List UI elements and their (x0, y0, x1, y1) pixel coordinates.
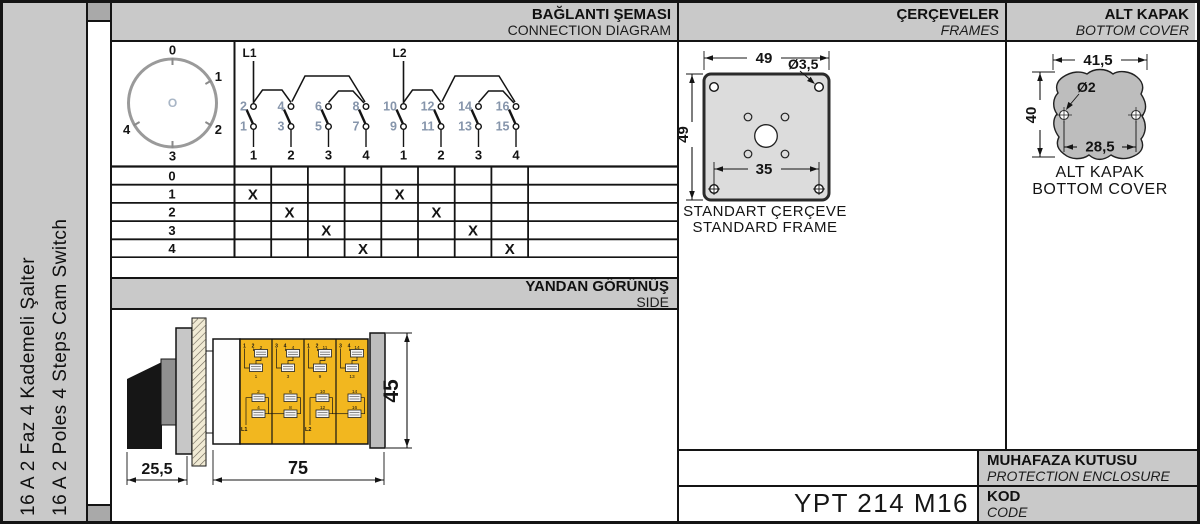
module-feed-label: L2 (305, 427, 311, 433)
dim-arrow (375, 477, 383, 483)
switch-contact: 14133 (458, 100, 482, 163)
dim-arrow (1037, 148, 1043, 156)
dim-arrow (1054, 57, 1062, 63)
frame-dim-spacing: 35 (756, 161, 773, 178)
terminal-number-bottom: 11 (421, 120, 434, 134)
datasheet-page: 16 A 2 Faz 4 Kademeli Şalter 16 A 2 Pole… (0, 0, 1200, 524)
switch-contact: 432 (278, 100, 295, 163)
side-view-tr: YANDAN GÖRÜNÜŞ (525, 278, 669, 295)
terminal-number-top: 6 (315, 100, 322, 114)
header-band: BAĞLANTI ŞEMASI CONNECTION DIAGRAM ÇERÇE… (112, 3, 1197, 42)
standard-frame-drawing: 49Ø3,54935STANDART ÇERÇEVESTANDARD FRAME (679, 50, 847, 236)
header-connection-tr: BAĞLANTI ŞEMASI (532, 6, 671, 23)
terminal-block-number: 12 (320, 405, 326, 411)
handle-knob (127, 360, 166, 449)
terminal-block-number: 4 (257, 405, 260, 411)
dial-position-label: 0 (169, 43, 176, 58)
table-mark: X (468, 223, 478, 240)
terminal-number-bottom: 7 (353, 120, 360, 134)
header-cell-bottom-cover: ALT KAPAK BOTTOM COVER (1005, 3, 1195, 40)
cover-dim-spacing: 28,5 (1085, 139, 1114, 156)
product-code: YPT 214 M16 (679, 487, 975, 519)
column-number: 4 (362, 148, 370, 163)
dim-arrow (128, 477, 136, 483)
standard-frame-svg: 49Ø3,54935STANDART ÇERÇEVESTANDARD FRAME (679, 42, 1005, 449)
terminal-number-bottom: 15 (496, 120, 510, 134)
column-number: 1 (250, 148, 257, 163)
code-label-en: CODE (987, 505, 1197, 520)
terminal-block-number: 4 (292, 345, 295, 351)
switch-contact: 12112 (421, 100, 445, 163)
enclosure-tr: MUHAFAZA KUTUSU (987, 452, 1197, 469)
switching-table: 01XX2XX3XX4XX (112, 167, 677, 258)
frame-label-tr: STANDART ÇERÇEVE (683, 203, 847, 220)
header-frames-en: FRAMES (941, 23, 999, 38)
table-row-label: 0 (168, 168, 175, 183)
frame-label-en: STANDARD FRAME (692, 219, 837, 236)
registration-mark-bottom (88, 504, 110, 521)
dial-position-label: 2 (215, 122, 222, 137)
terminal-number-top: 10 (383, 100, 397, 114)
dim-handle: 25,5 (141, 461, 172, 478)
header-frames-tr: ÇERÇEVELER (896, 6, 999, 23)
column-number: 3 (325, 148, 332, 163)
dial-position-label: 3 (169, 149, 176, 164)
side-view-band: YANDAN GÖRÜNÜŞ SIDE (112, 277, 677, 310)
terminal-number-top: 14 (458, 100, 472, 114)
table-mark: X (505, 241, 515, 258)
table-mark: X (431, 205, 441, 222)
terminal-block-number: 9 (319, 374, 322, 380)
table-mark: X (285, 205, 295, 222)
table-mark: X (321, 223, 331, 240)
header-connection-en: CONNECTION DIAGRAM (508, 23, 671, 38)
terminal-number-top: 4 (278, 100, 285, 114)
header-cell-frames: ÇERÇEVELER FRAMES (677, 3, 1005, 40)
side-view-svg: 122124L1344368121191012L234141314164525,… (112, 310, 677, 521)
terminal-block-number: 6 (289, 389, 292, 395)
dim-height: 45 (380, 379, 403, 403)
dim-arrow (705, 55, 713, 61)
switch-contact: 874 (353, 100, 371, 163)
dial-position-label: 1 (215, 69, 222, 84)
cover-dim-height: 40 (1023, 107, 1040, 124)
dim-arrow (404, 439, 410, 447)
terminal-block-number: 3 (287, 374, 290, 380)
enclosure-en: PROTECTION ENCLOSURE (987, 469, 1197, 484)
side-view-en: SIDE (636, 295, 669, 310)
header-bottom-cover-tr: ALT KAPAK (1105, 6, 1189, 23)
rotary-position-dial: 01234O (123, 43, 222, 164)
terminal-number-bottom: 13 (458, 120, 472, 134)
module-corner-number: 2 (316, 344, 319, 350)
switch-contact: 211 (240, 100, 257, 163)
dim-arrow (1037, 73, 1043, 81)
terminal-block-number: 2 (257, 389, 260, 395)
header-cell-connection-diagram: BAĞLANTI ŞEMASI CONNECTION DIAGRAM (112, 3, 677, 40)
code-cell: KOD CODE (977, 487, 1197, 521)
module-feed-label: L1 (241, 427, 247, 433)
terminal-number-top: 16 (496, 100, 510, 114)
connection-diagram-svg: 01234OL1L2211432653874109112112141331615… (112, 40, 677, 258)
terminal-block-number: 8 (289, 405, 292, 411)
switch-contact: 653 (315, 100, 332, 163)
terminal-number-bottom: 1 (240, 120, 247, 134)
feed-label: L1 (243, 46, 257, 60)
table-mark: X (248, 186, 258, 203)
registration-mark-top (88, 3, 110, 22)
cover-dim-width: 41,5 (1083, 52, 1112, 69)
terminal-number-top: 8 (353, 100, 360, 114)
terminal-number-bottom: 9 (390, 120, 397, 134)
dial-center-mark: O (168, 96, 177, 110)
cover-label-en: BOTTOM COVER (1032, 181, 1168, 198)
terminal-block-number: 13 (349, 374, 355, 380)
module-corner-number: 4 (348, 344, 351, 350)
terminal-block-number: 2 (260, 345, 263, 351)
dial-position-label: 4 (123, 122, 131, 137)
frame-dim-width: 49 (756, 50, 773, 67)
code-label-tr: KOD (987, 488, 1197, 505)
terminal-number-bottom: 5 (315, 120, 322, 134)
dim-arrow (404, 334, 410, 342)
cam-switch-side-view: 122124L1344368121191012L234141314164525,… (127, 318, 412, 485)
sidebar (3, 3, 88, 521)
feed-label: L2 (393, 46, 407, 60)
table-mark: X (395, 186, 405, 203)
cover-label-tr: ALT KAPAK (1056, 164, 1145, 181)
dim-arrow (214, 477, 222, 483)
frame-dim-hole: Ø3,5 (788, 56, 819, 72)
terminal-block-number: 11 (323, 345, 328, 351)
dim-arrow (178, 477, 186, 483)
connection-diagram: 01234OL1L2211432653874109112112141331615… (112, 40, 677, 258)
terminal-block-number: 14 (352, 389, 358, 395)
terminal-number-bottom: 3 (278, 120, 285, 134)
bottom-cover-drawing: 41,540Ø228,5ALT KAPAKBOTTOM COVER (1023, 52, 1168, 198)
module-corner-number: 2 (252, 344, 255, 350)
bottom-cover-svg: 41,540Ø228,5ALT KAPAKBOTTOM COVER (1007, 42, 1197, 449)
product-title-english: 16 A 2 Poles 4 Steps Cam Switch (50, 219, 72, 517)
column-number: 2 (437, 148, 444, 163)
table-row-label: 2 (168, 205, 175, 220)
dim-arrow (689, 75, 695, 83)
table-row-label: 4 (168, 241, 176, 256)
column-number: 3 (475, 148, 482, 163)
table-mark: X (358, 241, 368, 258)
column-number: 4 (512, 148, 520, 163)
terminal-block-number: 1 (255, 374, 258, 380)
terminal-number-top: 12 (421, 100, 435, 114)
switch-contact: 16154 (496, 100, 521, 163)
header-bottom-cover-en: BOTTOM COVER (1076, 23, 1189, 38)
terminal-block-number: 10 (320, 389, 326, 395)
dim-arrow (689, 191, 695, 199)
product-title-turkish: 16 A 2 Faz 4 Kademeli Şalter (18, 257, 40, 516)
column-number: 2 (287, 148, 294, 163)
table-row-label: 1 (168, 187, 175, 202)
column-number: 1 (400, 148, 407, 163)
frame-dim-height: 49 (679, 126, 692, 143)
switch-contact: 1091 (383, 100, 407, 163)
terminal-block-number: 16 (352, 405, 358, 411)
dim-arrow (1138, 57, 1146, 63)
dim-arrow (820, 55, 828, 61)
dim-body: 75 (288, 458, 308, 478)
cover-dim-hole: Ø2 (1077, 79, 1096, 95)
enclosure-cell: MUHAFAZA KUTUSU PROTECTION ENCLOSURE (977, 451, 1197, 485)
terminal-number-top: 2 (240, 100, 247, 114)
terminal-block-number: 14 (354, 345, 360, 351)
module-corner-number: 4 (284, 344, 287, 350)
table-row-label: 3 (168, 223, 175, 238)
